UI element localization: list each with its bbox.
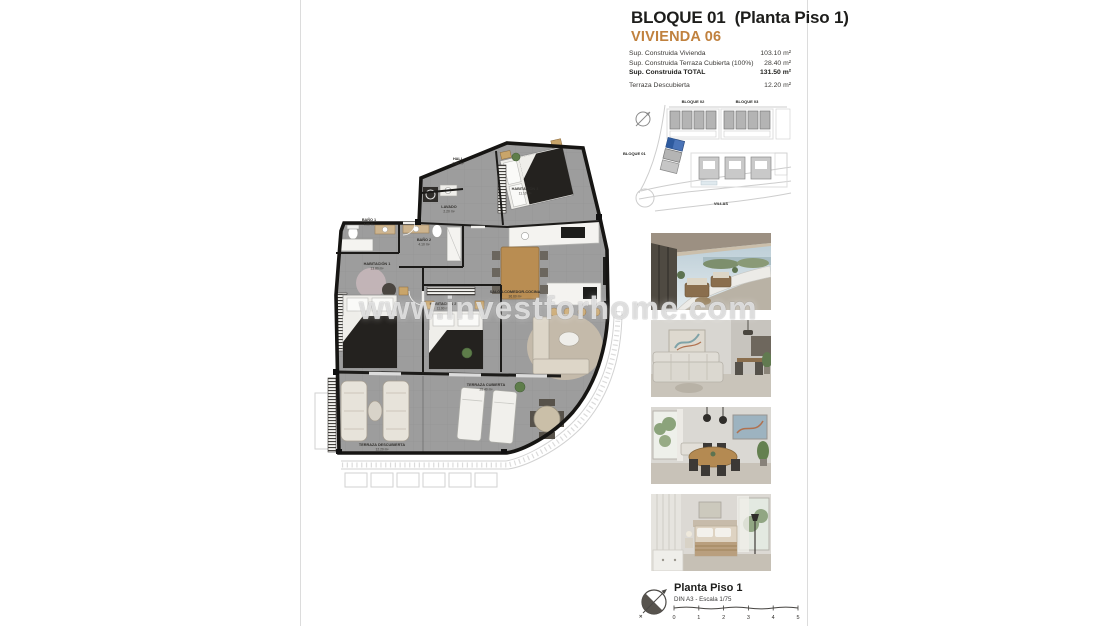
footer-plan-name: Planta Piso 1 (674, 582, 742, 594)
photo-bedroom (651, 494, 771, 571)
room-label-bano-2: BAÑO 2 (417, 237, 431, 242)
surface-table: Sup. Construida Vivienda 103.10 m² Sup. … (629, 49, 791, 90)
page-title: BLOQUE 01(Planta Piso 1) (631, 8, 849, 28)
photo-living-scene (651, 320, 771, 397)
scale-tick: 5 (796, 615, 799, 621)
plant (462, 348, 472, 358)
plant (515, 382, 525, 392)
scale-tick: 1 (697, 615, 700, 621)
room-area-habitacion-1: 13.80 m² (370, 267, 384, 271)
room-area-lavado: 2.20 m² (443, 210, 455, 214)
photo-dining-scene (651, 407, 771, 484)
photo-dining-area (651, 407, 771, 484)
surface-row-total: Sup. Construida TOTAL 131.50 m² (629, 68, 791, 78)
bed-habitacion-2 (425, 301, 484, 369)
photo-terrace-view (651, 233, 771, 310)
scale-tick-labels: 0 1 2 3 4 5 (672, 615, 799, 621)
site-map: BLOQUE 02 BLOQUE 03 BLOQUE 01 VILLAS (621, 95, 793, 215)
scale-tick: 2 (722, 615, 725, 621)
unit-title: VIVIENDA 06 (631, 29, 721, 45)
wardrobe-habitacion-2 (427, 287, 475, 295)
room-label-lavado: LAVADO (441, 205, 457, 209)
photo-bedroom-scene (651, 494, 771, 571)
surface-value: 131.50 m² (760, 68, 791, 78)
bloque01-building (660, 137, 684, 173)
scale-bar (674, 606, 798, 611)
room-label-terraza-cubierta: TERRAZA CUBIERTA (467, 383, 506, 387)
label-bloque03: BLOQUE 03 (736, 99, 759, 104)
surface-row: Sup. Construida Vivienda 103.10 m² (629, 49, 791, 59)
photo-terrace-scene (651, 233, 771, 310)
rug-habitacion-1 (356, 268, 386, 298)
room-label-salon: SALÓN-COMEDOR-COCINA (490, 289, 541, 294)
north-icon (636, 112, 650, 126)
room-label-terraza-descubierta: TERRAZA DESCUBIERTA (359, 443, 405, 447)
surface-row: Terraza Descubierta 12.20 m² (629, 81, 791, 91)
title-floor: (Planta Piso 1) (735, 8, 849, 27)
room-area-hall: 2.80 m² (452, 162, 464, 166)
room-label-habitacion-2: HABITACIÓN 2 (430, 301, 457, 306)
surface-label: Sup. Construida TOTAL (629, 68, 705, 78)
surface-label: Sup. Construida Terraza Cubierta (100%) (629, 59, 754, 69)
room-area-terraza-descubierta: 12.20 m² (375, 448, 389, 452)
surface-value: 28.40 m² (764, 59, 791, 69)
room-area-terraza-cubierta: 28.40 m² (479, 388, 493, 392)
terrace-louver (328, 378, 336, 452)
surface-label: Sup. Construida Vivienda (629, 49, 706, 59)
bloque03-buildings (721, 109, 790, 139)
room-label-hall: HALL (453, 157, 464, 161)
scale-tick: 3 (747, 615, 750, 621)
room-label-bano-1: BAÑO 1 (362, 217, 376, 222)
room-area-habitacion-3: 11.10 m² (519, 192, 533, 196)
title-block: BLOQUE 01 (631, 8, 726, 27)
surface-row: Sup. Construida Terraza Cubierta (100%) … (629, 59, 791, 69)
room-label-habitacion-1: HABITACIÓN 1 (364, 261, 391, 266)
label-villas: VILLAS (714, 201, 729, 206)
living-sofa (527, 314, 603, 380)
brochure-page: BLOQUE 01(Planta Piso 1) VIVIENDA 06 Sup… (0, 0, 1110, 626)
label-bloque02: BLOQUE 02 (682, 99, 705, 104)
room-area-habitacion-2: 11.90 m² (437, 307, 451, 311)
footer-scale-block: Planta Piso 1 DIN A3 - Escala 1/75 0 1 2… (636, 578, 806, 624)
bloque02-buildings (667, 109, 719, 139)
footer-scale-note: DIN A3 - Escala 1/75 (674, 596, 732, 603)
label-bloque01: BLOQUE 01 (623, 151, 646, 156)
scale-tick: 4 (772, 615, 775, 621)
room-area-salon: 36.60 m² (508, 295, 522, 299)
surface-value: 103.10 m² (760, 49, 791, 59)
room-area-bano-1: 4.00 m² (363, 223, 375, 227)
floor-plan: HALL 2.80 m² LAVADO 2.20 m² HABITACIÓN 3… (311, 135, 626, 520)
surface-value: 12.20 m² (764, 81, 791, 91)
photo-living-room (651, 320, 771, 397)
surface-label: Terraza Descubierta (629, 81, 690, 91)
room-label-habitacion-3: HABITACIÓN 3 (512, 186, 539, 191)
compass-icon (640, 589, 668, 618)
room-area-bano-2: 4.10 m² (418, 243, 430, 247)
plant (512, 153, 520, 161)
plan-sheet: BLOQUE 01(Planta Piso 1) VIVIENDA 06 Sup… (300, 0, 808, 626)
scale-tick: 0 (672, 615, 675, 621)
